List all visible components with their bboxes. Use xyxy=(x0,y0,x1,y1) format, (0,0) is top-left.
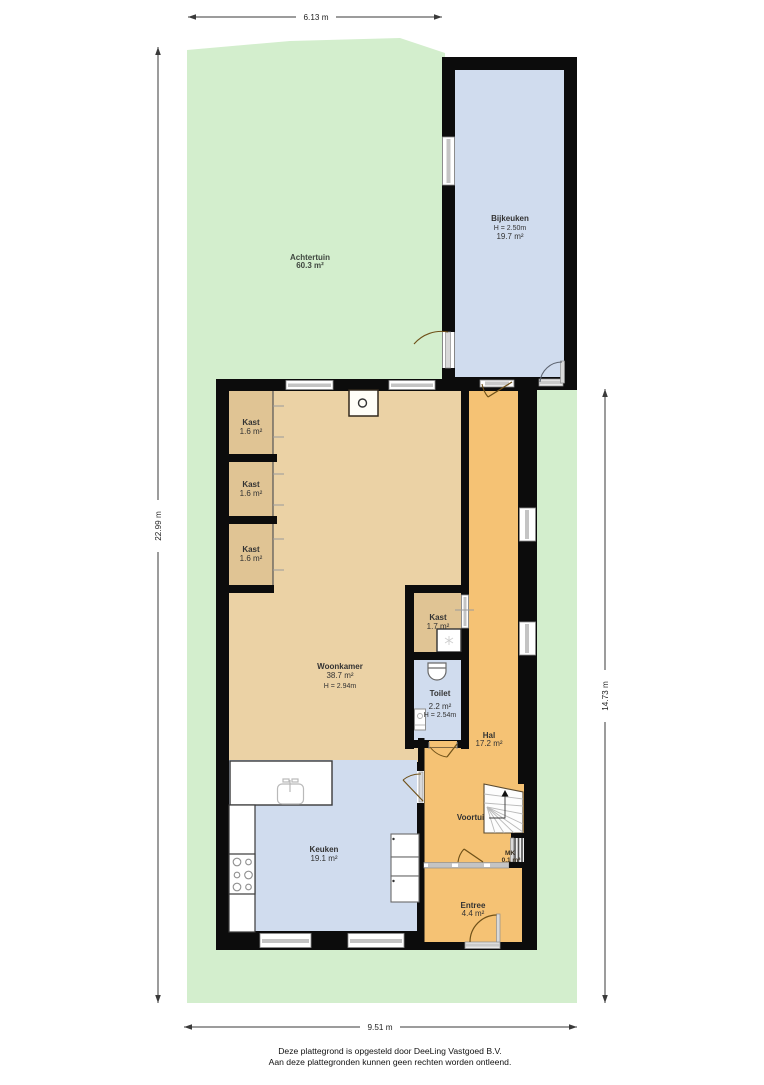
svg-text:Kast: Kast xyxy=(242,418,260,427)
svg-text:4.4 m²: 4.4 m² xyxy=(462,909,485,918)
svg-text:Aan deze plattegronden kunnen: Aan deze plattegronden kunnen geen recht… xyxy=(269,1057,512,1067)
svg-text:Keuken: Keuken xyxy=(310,845,339,854)
svg-text:1.6 m²: 1.6 m² xyxy=(240,489,263,498)
svg-text:2.2 m²: 2.2 m² xyxy=(429,702,452,711)
svg-text:22.99 m: 22.99 m xyxy=(154,511,163,541)
svg-text:38.7 m²: 38.7 m² xyxy=(326,671,353,680)
svg-text:Kast: Kast xyxy=(242,480,260,489)
svg-text:Deze plattegrond is opgesteld: Deze plattegrond is opgesteld door DeeLi… xyxy=(278,1046,502,1056)
svg-text:Bijkeuken: Bijkeuken xyxy=(491,214,529,223)
svg-text:1.6 m²: 1.6 m² xyxy=(240,554,263,563)
svg-text:Woonkamer: Woonkamer xyxy=(317,662,363,671)
svg-text:60.3 m²: 60.3 m² xyxy=(296,261,324,270)
svg-text:Kast: Kast xyxy=(242,545,260,554)
svg-text:19.1 m²: 19.1 m² xyxy=(310,854,337,863)
svg-text:H = 2.50m: H = 2.50m xyxy=(494,225,527,232)
svg-text:9.51 m: 9.51 m xyxy=(367,1023,392,1032)
svg-text:6.13 m: 6.13 m xyxy=(303,13,328,22)
svg-text:17.2 m²: 17.2 m² xyxy=(475,739,502,748)
svg-text:MK: MK xyxy=(505,850,515,857)
svg-text:Kast: Kast xyxy=(429,613,447,622)
svg-text:H = 2.94m: H = 2.94m xyxy=(324,683,357,690)
svg-text:14.73 m: 14.73 m xyxy=(601,681,610,711)
svg-text:Toilet: Toilet xyxy=(430,689,451,698)
svg-text:19.7 m²: 19.7 m² xyxy=(496,232,523,241)
svg-text:1.6 m²: 1.6 m² xyxy=(240,427,263,436)
svg-text:H = 2.54m: H = 2.54m xyxy=(424,712,457,719)
